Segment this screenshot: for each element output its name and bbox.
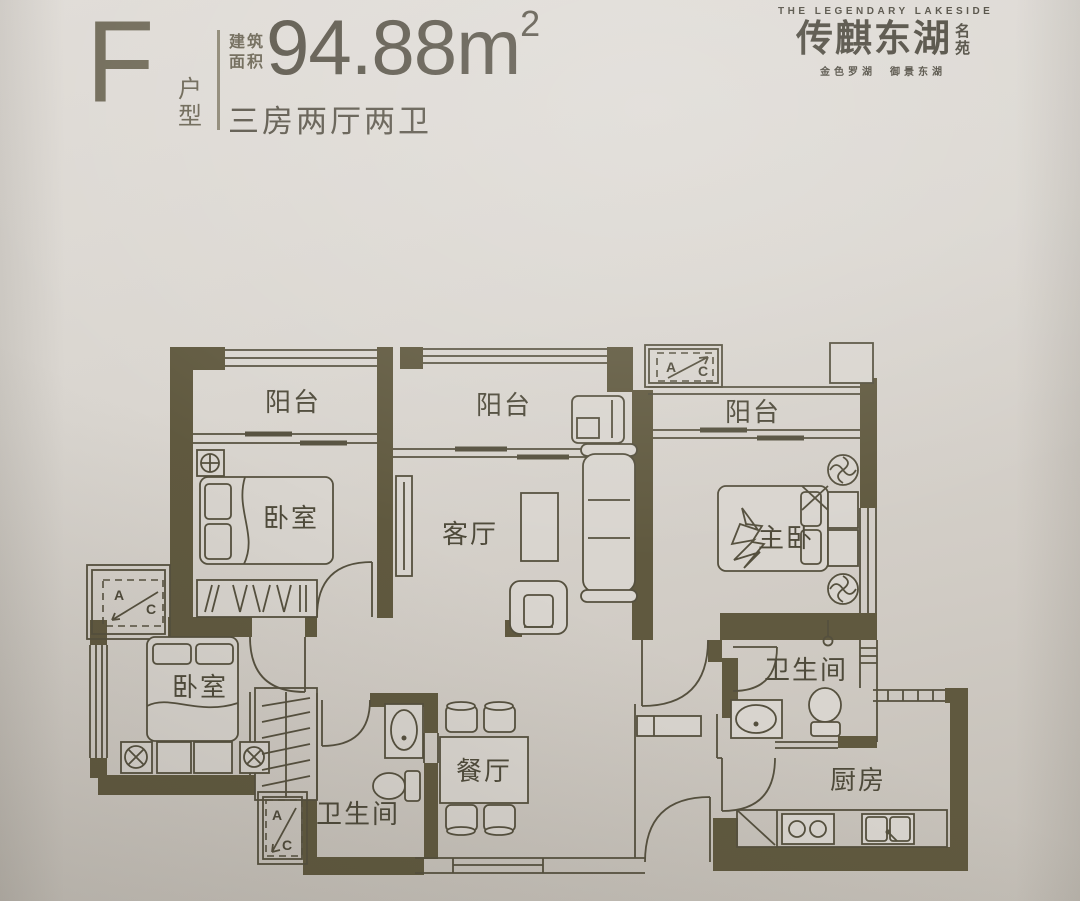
cabinet xyxy=(157,742,191,773)
ac-unit-top: A C xyxy=(657,353,713,381)
room-label-master: 主卧 xyxy=(758,523,814,553)
bedroom2-door xyxy=(250,637,305,692)
stove xyxy=(782,814,834,844)
shaft xyxy=(830,343,873,383)
balcony3-slider xyxy=(653,430,860,438)
dining-chair xyxy=(484,805,515,835)
bath1-door xyxy=(322,700,370,746)
room-label-balcony3: 阳台 xyxy=(725,397,781,427)
floor-plan-photo: F 户 型 建筑 面积 94.88m2 三房两厅两卫 THE LEGENDARY… xyxy=(0,0,1080,901)
balcony3-window xyxy=(648,387,860,394)
bath2-window xyxy=(860,640,877,705)
ac-unit-bottom: A C xyxy=(266,800,302,856)
toilet-bath2 xyxy=(809,688,841,736)
svg-text:C: C xyxy=(146,601,156,617)
wardrobe-bedroom1 xyxy=(197,580,317,617)
bedroom1-door xyxy=(317,562,372,617)
room-label-bedroom2: 卧室 xyxy=(172,672,228,702)
armchair xyxy=(510,581,567,634)
entry-door xyxy=(645,797,710,862)
floor-plan-svg: A C A C A C 阳台 阳台 阳台 卧室 客厅 主 xyxy=(0,0,1080,901)
room-label-balcony2: 阳台 xyxy=(476,390,532,420)
kitchen-door xyxy=(722,758,775,811)
room-label-balcony1: 阳台 xyxy=(265,387,321,417)
room-label-living: 客厅 xyxy=(442,519,498,549)
room-label-bath2: 卫生间 xyxy=(764,655,848,685)
ac-unit-left: A C xyxy=(103,580,163,626)
kitchen-window xyxy=(873,690,945,701)
balcony1-window xyxy=(225,350,377,366)
dining-wall-window xyxy=(415,858,645,873)
fan-icon xyxy=(828,574,858,604)
nightstand xyxy=(828,492,858,528)
sink-bath2 xyxy=(731,700,782,738)
svg-text:A: A xyxy=(272,807,282,823)
svg-text:C: C xyxy=(282,837,292,853)
sink-bath1 xyxy=(385,704,423,758)
kitchen-sink xyxy=(862,814,914,844)
nightstand xyxy=(828,530,858,566)
balcony2-window xyxy=(423,349,607,363)
room-label-bath1: 卫生间 xyxy=(316,799,400,829)
nightstand-lamp-icon xyxy=(121,742,152,773)
cabinet xyxy=(194,742,232,773)
svg-text:A: A xyxy=(114,587,124,603)
dining-chair xyxy=(484,702,515,732)
kitchen-counter xyxy=(737,810,947,847)
master-window xyxy=(860,508,876,613)
sofa xyxy=(581,444,637,602)
master-hall-door xyxy=(642,640,708,706)
balcony-cabinet xyxy=(572,396,624,443)
dining-chair xyxy=(446,702,477,732)
dining-chair xyxy=(446,805,477,835)
ac-letter-a: A xyxy=(666,359,676,375)
water-heater-icon xyxy=(197,450,224,476)
fan-icon xyxy=(828,455,858,485)
room-label-kitchen: 厨房 xyxy=(830,765,886,795)
ac-letter-c: C xyxy=(698,363,708,379)
coffee-table xyxy=(521,493,558,561)
shoe-cabinet xyxy=(637,716,701,736)
nightstand-lamp-icon xyxy=(240,742,269,773)
bedroom2-window xyxy=(90,645,107,758)
toilet-bath1 xyxy=(373,771,420,801)
room-label-bedroom1: 卧室 xyxy=(263,503,319,533)
room-label-dining: 餐厅 xyxy=(456,756,512,786)
